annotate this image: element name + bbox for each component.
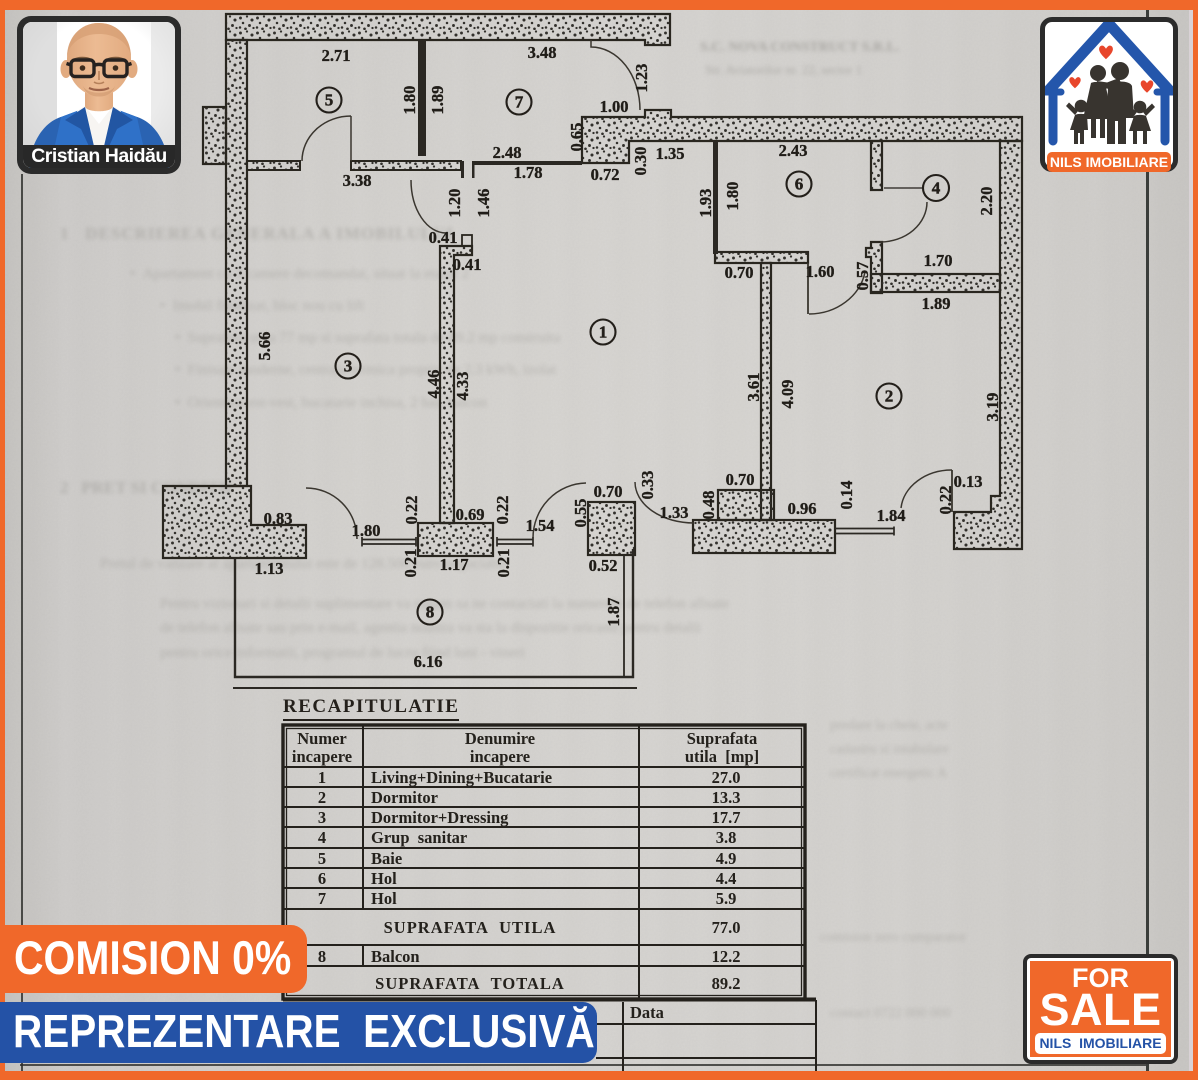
svg-text:5: 5 (318, 849, 326, 868)
svg-text:4.9: 4.9 (716, 849, 737, 868)
svg-text:77.0: 77.0 (712, 918, 741, 937)
svg-text:Dormitor: Dormitor (371, 788, 438, 807)
svg-text:3: 3 (318, 808, 326, 827)
svg-text:Balcon: Balcon (371, 947, 420, 966)
svg-text:utila [mp]: utila [mp] (685, 747, 759, 766)
svg-text:4.4: 4.4 (716, 869, 737, 888)
svg-text:13.3: 13.3 (712, 788, 741, 807)
svg-text:Suprafata: Suprafata (687, 729, 758, 748)
svg-text:89.2: 89.2 (712, 974, 741, 993)
svg-text:27.0: 27.0 (712, 768, 741, 787)
svg-text:Hol: Hol (371, 869, 397, 888)
svg-text:Grup sanitar: Grup sanitar (371, 828, 467, 847)
svg-text:incapere: incapere (470, 747, 530, 766)
svg-text:12.2: 12.2 (712, 947, 741, 966)
svg-text:Data: Data (630, 1003, 664, 1022)
svg-text:SUPRAFATA UTILA: SUPRAFATA UTILA (384, 918, 557, 937)
svg-text:Denumire: Denumire (465, 729, 535, 748)
svg-text:1: 1 (318, 768, 326, 787)
svg-text:SUPRAFATA TOTALA: SUPRAFATA TOTALA (375, 974, 565, 993)
svg-text:Baie: Baie (371, 849, 402, 868)
svg-text:6: 6 (318, 869, 326, 888)
svg-text:incapere: incapere (292, 747, 352, 766)
svg-text:4: 4 (318, 828, 326, 847)
svg-text:2: 2 (318, 788, 326, 807)
svg-text:Dormitor+Dressing: Dormitor+Dressing (371, 808, 509, 827)
svg-text:5.9: 5.9 (716, 889, 737, 908)
svg-text:Living+Dining+Bucatarie: Living+Dining+Bucatarie (371, 768, 552, 787)
svg-text:17.7: 17.7 (712, 808, 741, 827)
svg-text:3.8: 3.8 (716, 828, 737, 847)
svg-text:Hol: Hol (371, 889, 397, 908)
svg-text:7: 7 (318, 889, 326, 908)
svg-text:Numer: Numer (297, 729, 346, 748)
svg-text:8: 8 (318, 947, 326, 966)
